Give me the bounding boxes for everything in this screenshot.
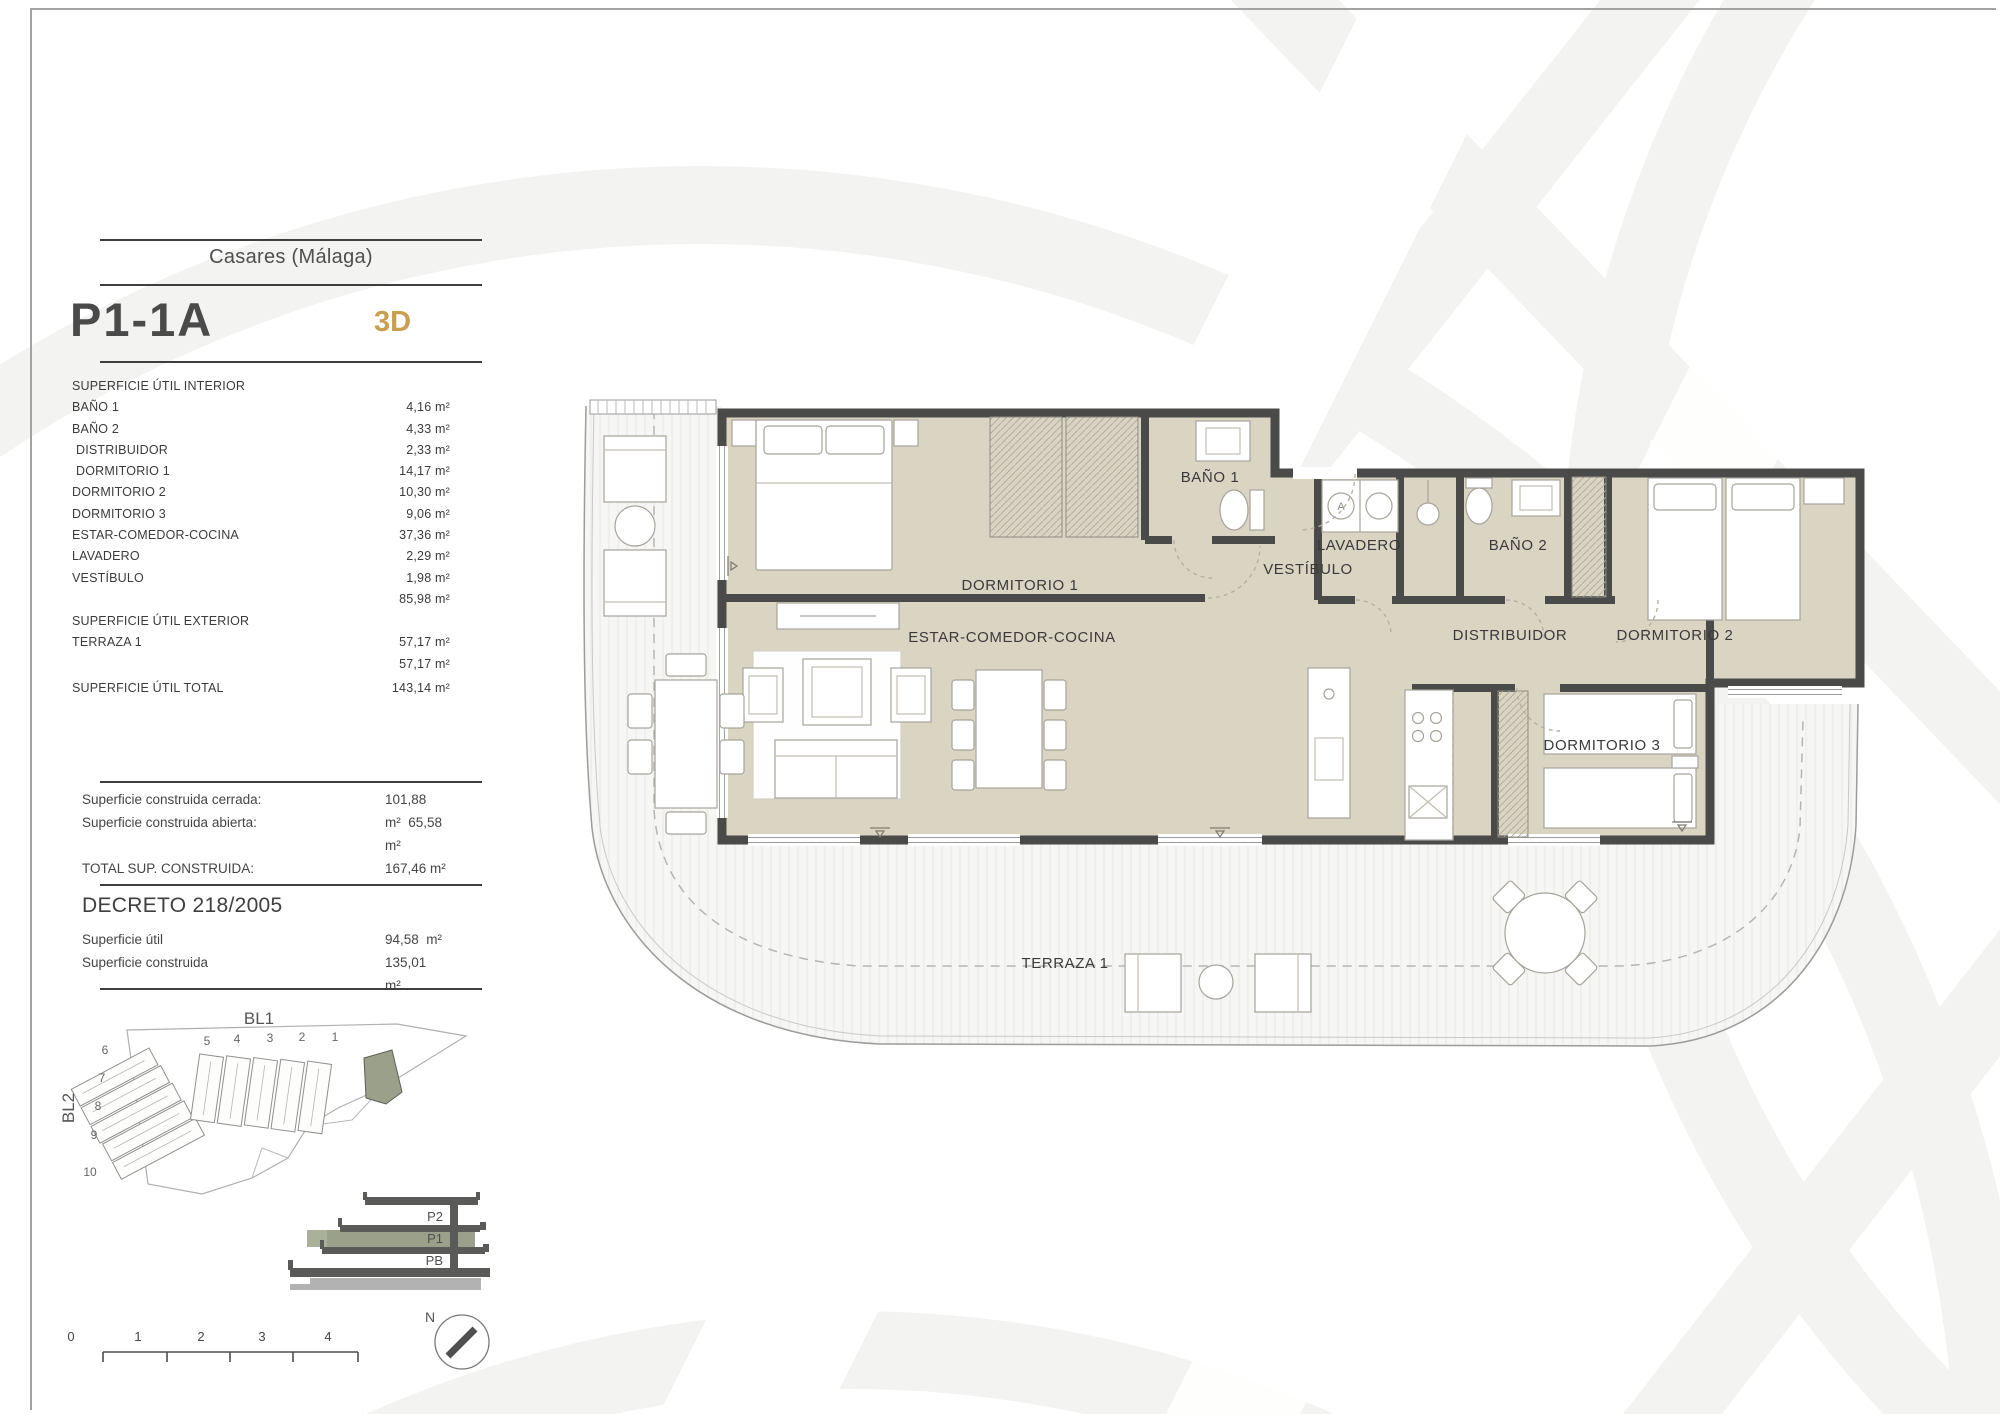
sheet-border-top xyxy=(30,8,1996,10)
table-row: ESTAR-COMEDOR-COCINA37,36 m² xyxy=(72,525,450,546)
site-number: 5 xyxy=(204,1034,211,1048)
section-label-p1: P1 xyxy=(427,1231,443,1246)
interior-surface-table: SUPERFICIE ÚTIL INTERIOR BAÑO 14,16 m² B… xyxy=(72,376,450,610)
table-row: Superficie construida135,01 xyxy=(82,951,454,974)
scale-tick-label: 1 xyxy=(134,1329,141,1344)
room-label-bano1: BAÑO 1 xyxy=(1181,469,1240,486)
decreto-table: Superficie útil94,58 m² Superficie const… xyxy=(82,928,454,997)
rule-below-unit xyxy=(100,361,482,363)
built-surface-table: Superficie construida cerrada:101,88 Sup… xyxy=(82,788,454,880)
room-label-distribuidor: DISTRIBUIDOR xyxy=(1453,627,1568,644)
plan-sheet: Casares (Málaga) P1-1A 3D SUPERFICIE ÚTI… xyxy=(0,0,2000,1414)
site-block-bl2 xyxy=(71,1044,204,1180)
table-row: Superficie útil94,58 m² xyxy=(82,928,454,951)
unit-code: P1-1A xyxy=(70,292,213,347)
rule-below-location xyxy=(100,284,482,286)
exterior-table-title: SUPERFICIE ÚTIL EXTERIOR xyxy=(72,611,450,632)
sheet-border-left xyxy=(30,8,32,1410)
room-label-vestibulo: VESTÍBULO xyxy=(1263,561,1353,578)
floor-plan: A DORMITORIO 1 BAÑO 1 VESTÍBULO LAVADERO… xyxy=(560,388,1900,1078)
scale-tick-label: 2 xyxy=(197,1329,204,1344)
room-label-lavadero: LAVADERO xyxy=(1317,537,1401,554)
terrace-railing xyxy=(590,400,716,414)
site-label-bl2: BL2 xyxy=(59,1093,78,1123)
site-number: 9 xyxy=(91,1128,98,1142)
scale-tick-label: 0 xyxy=(67,1329,74,1344)
room-label-bano2: BAÑO 2 xyxy=(1489,537,1548,554)
terrace-round-table xyxy=(1492,880,1598,986)
interior-table-title: SUPERFICIE ÚTIL INTERIOR xyxy=(72,376,450,397)
site-number: 4 xyxy=(234,1032,241,1046)
exterior-subtotal-row: 57,17 m² xyxy=(72,654,450,675)
table-row: Superficie construida abierta:m² 65,58 xyxy=(82,811,454,834)
rule-below-built xyxy=(100,884,482,886)
site-number: 10 xyxy=(83,1165,97,1179)
room-label-dormitorio2: DORMITORIO 2 xyxy=(1617,627,1734,644)
site-number: 6 xyxy=(102,1043,109,1057)
total-built-row: TOTAL SUP. CONSTRUIDA:167,46 m² xyxy=(82,857,454,880)
table-row: LAVADERO2,29 m² xyxy=(72,546,450,567)
scale-tick-label: 3 xyxy=(258,1329,265,1344)
room-label-terraza: TERRAZA 1 xyxy=(1021,955,1108,972)
interior-subtotal-row: 85,98 m² xyxy=(72,589,450,610)
table-row: m² xyxy=(82,974,454,997)
site-plan-map: BL1 BL2 5 4 3 2 1 6 7 8 9 10 xyxy=(52,1008,472,1220)
table-row: Superficie construida cerrada:101,88 xyxy=(82,788,454,811)
rule-below-decreto xyxy=(100,988,482,990)
section-label-pb: PB xyxy=(426,1253,443,1268)
room-label-estar: ESTAR-COMEDOR-COCINA xyxy=(908,629,1116,646)
rule-above-location xyxy=(100,239,482,241)
site-number: 2 xyxy=(299,1030,306,1044)
location-title: Casares (Málaga) xyxy=(100,246,482,269)
kitchen-island xyxy=(1308,668,1350,818)
laundry-fixtures xyxy=(1322,480,1398,532)
site-number: 8 xyxy=(95,1099,102,1113)
kitchen-counter xyxy=(1405,690,1453,840)
north-compass-icon: N xyxy=(415,1300,510,1395)
section-diagram: P2 P1 PB xyxy=(285,1192,505,1302)
3d-badge: 3D xyxy=(374,306,411,339)
table-row: TERRAZA 157,17 m² xyxy=(72,632,450,653)
table-row: DORMITORIO 114,17 m² xyxy=(72,461,450,482)
scale-tick-label: 4 xyxy=(324,1329,331,1344)
scale-bar: 0 1 2 3 4 xyxy=(58,1326,378,1372)
section-label-p2: P2 xyxy=(427,1209,443,1224)
rule-above-built xyxy=(100,781,482,783)
site-number: 7 xyxy=(99,1071,106,1085)
site-number: 3 xyxy=(267,1031,274,1045)
site-block-bl1 xyxy=(191,1046,332,1138)
table-row: m² xyxy=(82,834,454,857)
room-label-dormitorio3: DORMITORIO 3 xyxy=(1544,737,1661,754)
table-row: DORMITORIO 210,30 m² xyxy=(72,482,450,503)
room-label-dormitorio1: DORMITORIO 1 xyxy=(962,577,1079,594)
dining-set xyxy=(952,670,1066,790)
decreto-title: DECRETO 218/2005 xyxy=(82,894,283,918)
table-row: VESTÍBULO1,98 m² xyxy=(72,568,450,589)
dorm1-bed xyxy=(732,420,918,570)
site-highlighted-unit xyxy=(364,1050,402,1104)
north-label: N xyxy=(425,1309,435,1325)
table-row: DORMITORIO 39,06 m² xyxy=(72,504,450,525)
exterior-surface-table: SUPERFICIE ÚTIL EXTERIOR TERRAZA 157,17 … xyxy=(72,611,450,699)
section-ground xyxy=(290,1278,481,1290)
total-useful-row: SUPERFICIE ÚTIL TOTAL143,14 m² xyxy=(72,678,450,699)
table-row: DISTRIBUIDOR2,33 m² xyxy=(72,440,450,461)
site-number: 1 xyxy=(332,1030,339,1044)
table-row: BAÑO 14,16 m² xyxy=(72,397,450,418)
site-label-bl1: BL1 xyxy=(244,1009,274,1028)
table-row: BAÑO 24,33 m² xyxy=(72,419,450,440)
